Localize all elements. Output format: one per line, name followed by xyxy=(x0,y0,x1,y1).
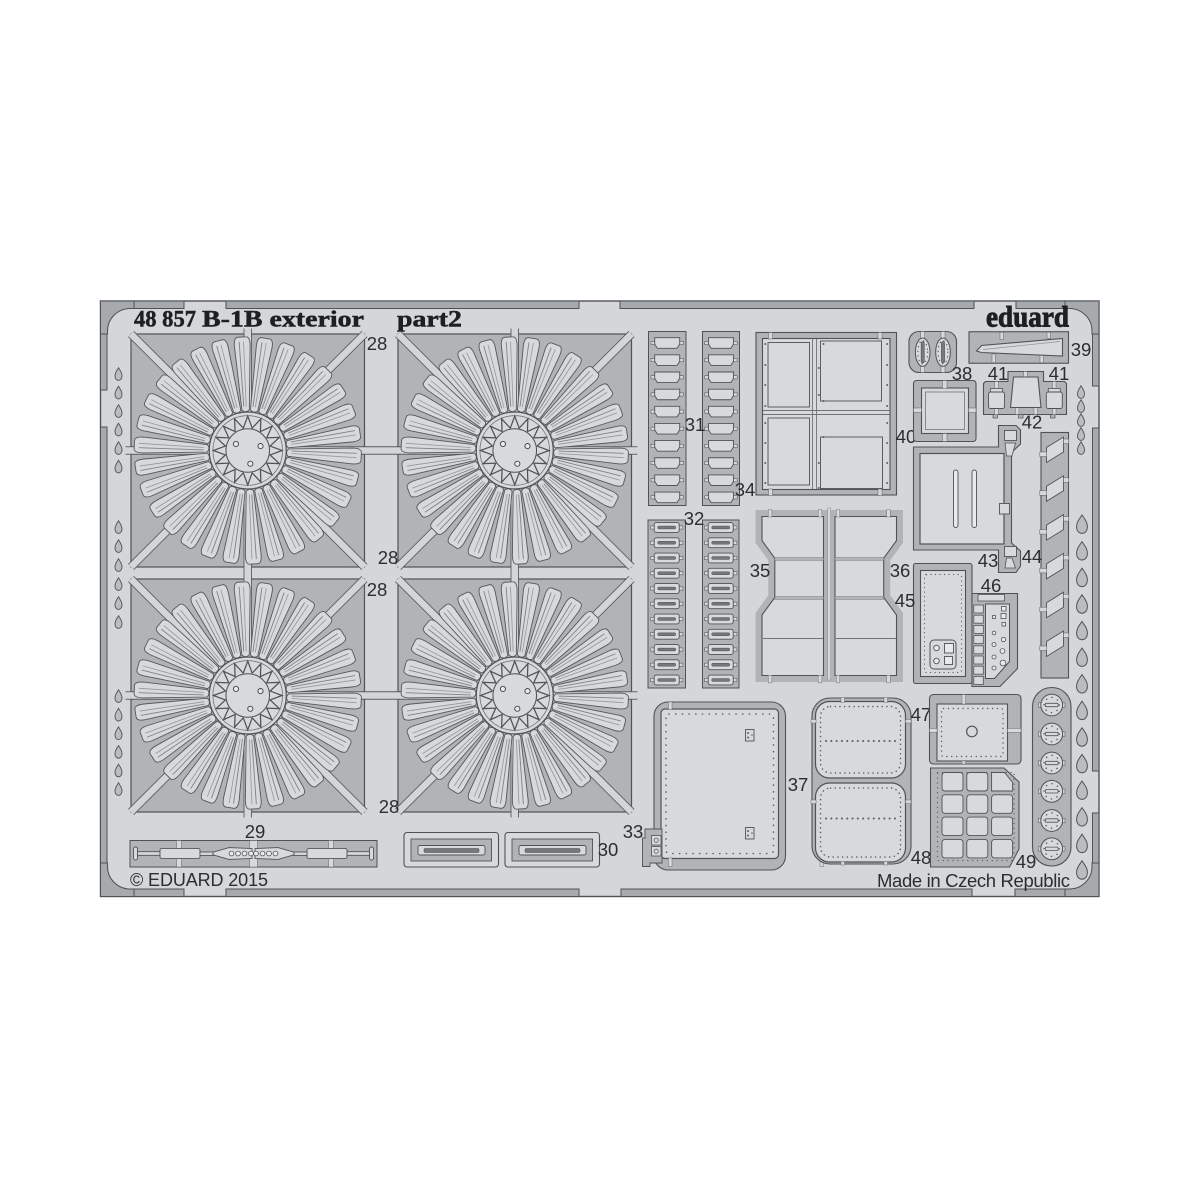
svg-text:29: 29 xyxy=(245,821,266,842)
svg-text:41: 41 xyxy=(1049,363,1070,384)
svg-text:28: 28 xyxy=(379,796,400,817)
svg-text:42: 42 xyxy=(1022,412,1043,433)
svg-text:31: 31 xyxy=(685,414,706,435)
svg-text:Made in Czech Republic: Made in Czech Republic xyxy=(877,870,1070,891)
svg-text:33: 33 xyxy=(623,821,644,842)
svg-text:45: 45 xyxy=(895,590,916,611)
svg-text:43: 43 xyxy=(978,550,999,571)
svg-text:39: 39 xyxy=(1071,339,1092,360)
svg-text:37: 37 xyxy=(788,774,809,795)
svg-text:28: 28 xyxy=(367,579,388,600)
svg-text:48 857B-1B exteriorpart2: 48 857B-1B exteriorpart2 xyxy=(134,307,462,332)
svg-text:48: 48 xyxy=(911,847,932,868)
svg-text:© EDUARD 2015: © EDUARD 2015 xyxy=(130,870,268,890)
svg-text:46: 46 xyxy=(981,575,1002,596)
svg-text:28: 28 xyxy=(367,333,388,354)
svg-text:36: 36 xyxy=(890,560,911,581)
svg-text:41: 41 xyxy=(988,363,1009,384)
svg-text:49: 49 xyxy=(1016,851,1037,872)
svg-text:34: 34 xyxy=(735,479,756,500)
svg-text:30: 30 xyxy=(598,839,619,860)
svg-text:35: 35 xyxy=(750,560,771,581)
svg-text:eduard: eduard xyxy=(986,301,1069,334)
svg-text:44: 44 xyxy=(1022,546,1043,567)
svg-text:28: 28 xyxy=(378,547,399,568)
svg-text:32: 32 xyxy=(684,508,705,529)
svg-text:47: 47 xyxy=(911,704,932,725)
